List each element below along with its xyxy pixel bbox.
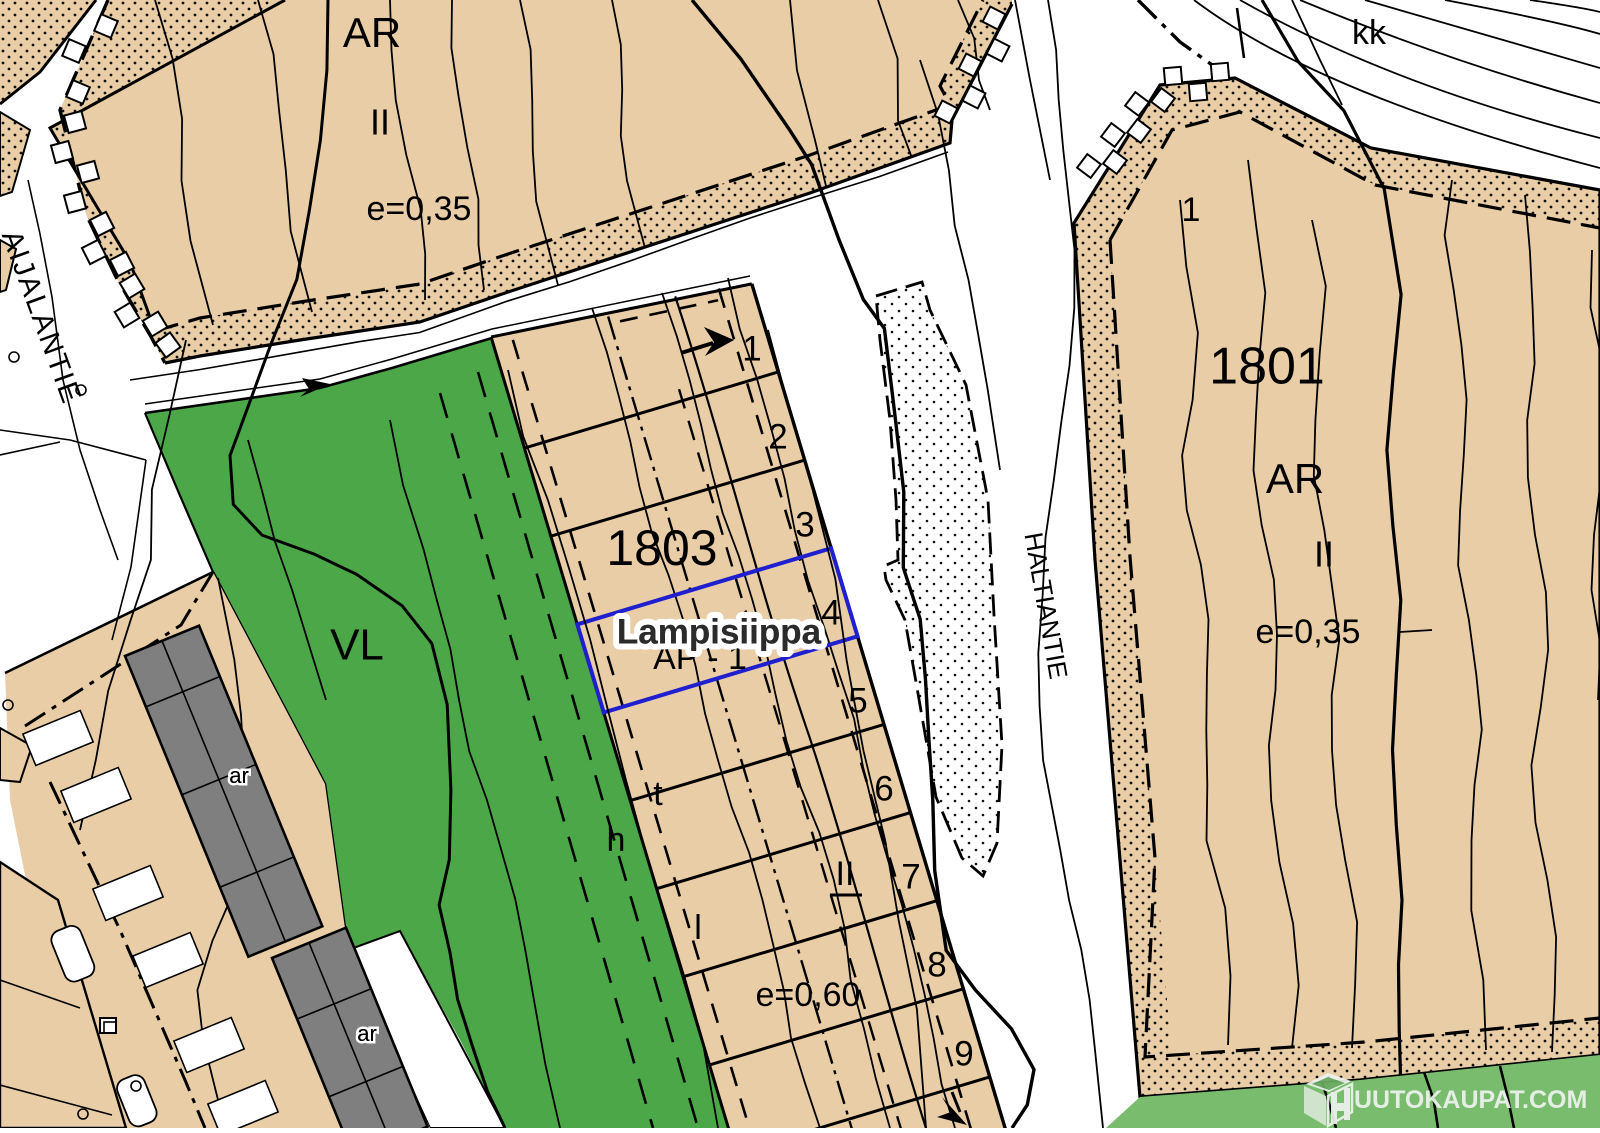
svg-text:7: 7	[901, 857, 920, 896]
svg-text:8: 8	[927, 945, 946, 984]
svg-text:1: 1	[1182, 191, 1201, 229]
svg-text:2: 2	[768, 417, 787, 456]
svg-text:II: II	[836, 855, 855, 893]
svg-text:Lampisiippa: Lampisiippa	[617, 612, 822, 651]
svg-text:l: l	[694, 909, 702, 947]
svg-text:AR: AR	[1266, 455, 1324, 502]
svg-text:3: 3	[795, 505, 814, 544]
svg-text:6: 6	[874, 769, 893, 808]
svg-text:ar: ar	[357, 1021, 377, 1046]
svg-text:II: II	[1314, 534, 1334, 575]
svg-text:t: t	[653, 775, 663, 813]
svg-text:e=0,60: e=0,60	[756, 976, 861, 1014]
svg-text:h: h	[607, 821, 626, 859]
svg-text:e=0,35: e=0,35	[1256, 613, 1361, 651]
svg-text:ar: ar	[229, 763, 249, 788]
svg-text:1: 1	[742, 329, 761, 368]
svg-text:9: 9	[954, 1034, 973, 1073]
svg-text:II: II	[370, 102, 390, 143]
svg-text:UUTOKAUPAT.COM: UUTOKAUPAT.COM	[1354, 1086, 1587, 1114]
svg-text:kk: kk	[1352, 14, 1387, 52]
svg-text:1803: 1803	[606, 520, 717, 576]
svg-text:VL: VL	[330, 621, 384, 670]
svg-text:1801: 1801	[1209, 338, 1325, 396]
svg-text:AR: AR	[343, 9, 401, 56]
svg-text:e=0,35: e=0,35	[367, 190, 472, 228]
